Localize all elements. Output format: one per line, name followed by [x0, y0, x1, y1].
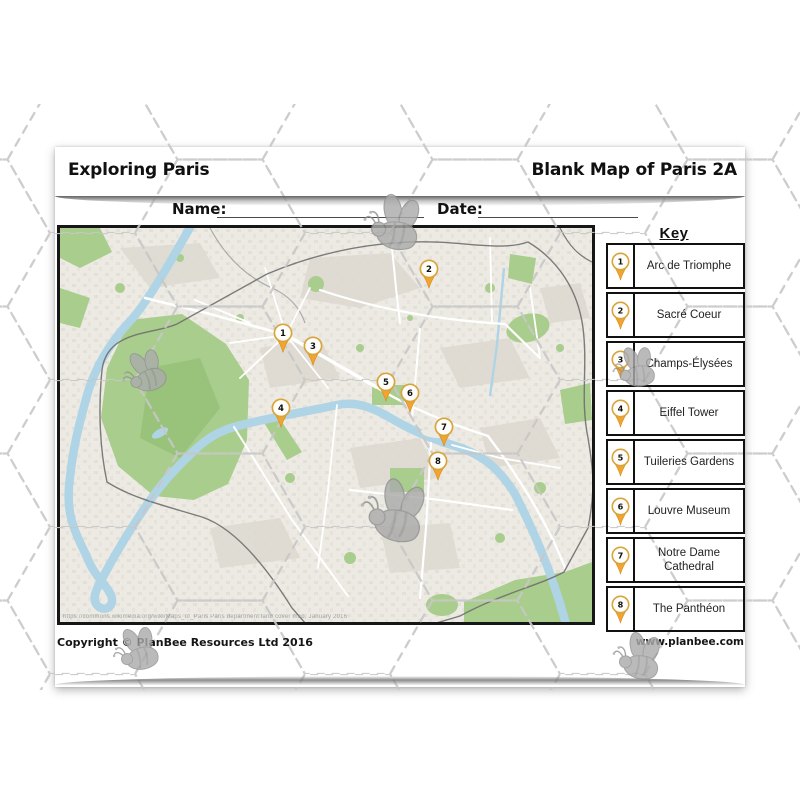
key-pin-icon: 7 — [608, 539, 635, 581]
page-title-right: Blank Map of Paris 2A — [531, 160, 737, 180]
key-row-1: 1 Arc de Triomphe — [606, 243, 745, 289]
bee-watermark-icon — [346, 464, 450, 568]
page-title-left: Exploring Paris — [68, 160, 209, 180]
key-row-2: 2 Sacré Coeur — [606, 292, 745, 338]
name-label: Name: — [172, 200, 226, 218]
paris-map — [57, 225, 595, 625]
bee-watermark-icon — [605, 337, 671, 403]
key-title: Key — [634, 225, 714, 242]
key-pin-icon: 5 — [608, 441, 635, 483]
svg-text:6: 6 — [618, 501, 624, 511]
date-label: Date: — [437, 200, 483, 218]
date-blank-line — [478, 217, 638, 218]
key-item-label: Arc de Triomphe — [635, 245, 743, 287]
key-row-6: 6 Louvre Museum — [606, 488, 745, 534]
bee-watermark-icon — [353, 183, 441, 271]
key-pin-icon: 2 — [608, 294, 635, 336]
svg-text:7: 7 — [618, 550, 624, 560]
copyright-text: Copyright © PlanBee Resources Ltd 2016 — [57, 636, 313, 649]
svg-text:4: 4 — [618, 403, 624, 413]
key-item-label: Eiffel Tower — [635, 392, 743, 434]
key-pin-icon: 1 — [608, 245, 635, 287]
svg-text:8: 8 — [618, 599, 624, 609]
key-item-label: The Panthéon — [635, 588, 743, 630]
key-item-label: Sacré Coeur — [635, 294, 743, 336]
key-item-label: Tuileries Gardens — [635, 441, 743, 483]
svg-text:1: 1 — [618, 256, 624, 266]
paris-map-graphic — [60, 228, 592, 622]
bee-watermark-icon — [604, 623, 679, 698]
key-item-label: Notre Dame Cathedral — [635, 539, 743, 581]
svg-text:2: 2 — [618, 305, 624, 315]
svg-text:5: 5 — [618, 452, 624, 462]
worksheet-canvas: https://commons.wikimedia.org/wiki/Maps_… — [0, 0, 800, 800]
key-row-5: 5 Tuileries Gardens — [606, 439, 745, 485]
key-row-7: 7 Notre Dame Cathedral — [606, 537, 745, 583]
key-pin-icon: 6 — [608, 490, 635, 532]
key-table: 1 Arc de Triomphe 2 Sacré Coeur 3 Champs… — [606, 243, 745, 632]
key-item-label: Louvre Museum — [635, 490, 743, 532]
